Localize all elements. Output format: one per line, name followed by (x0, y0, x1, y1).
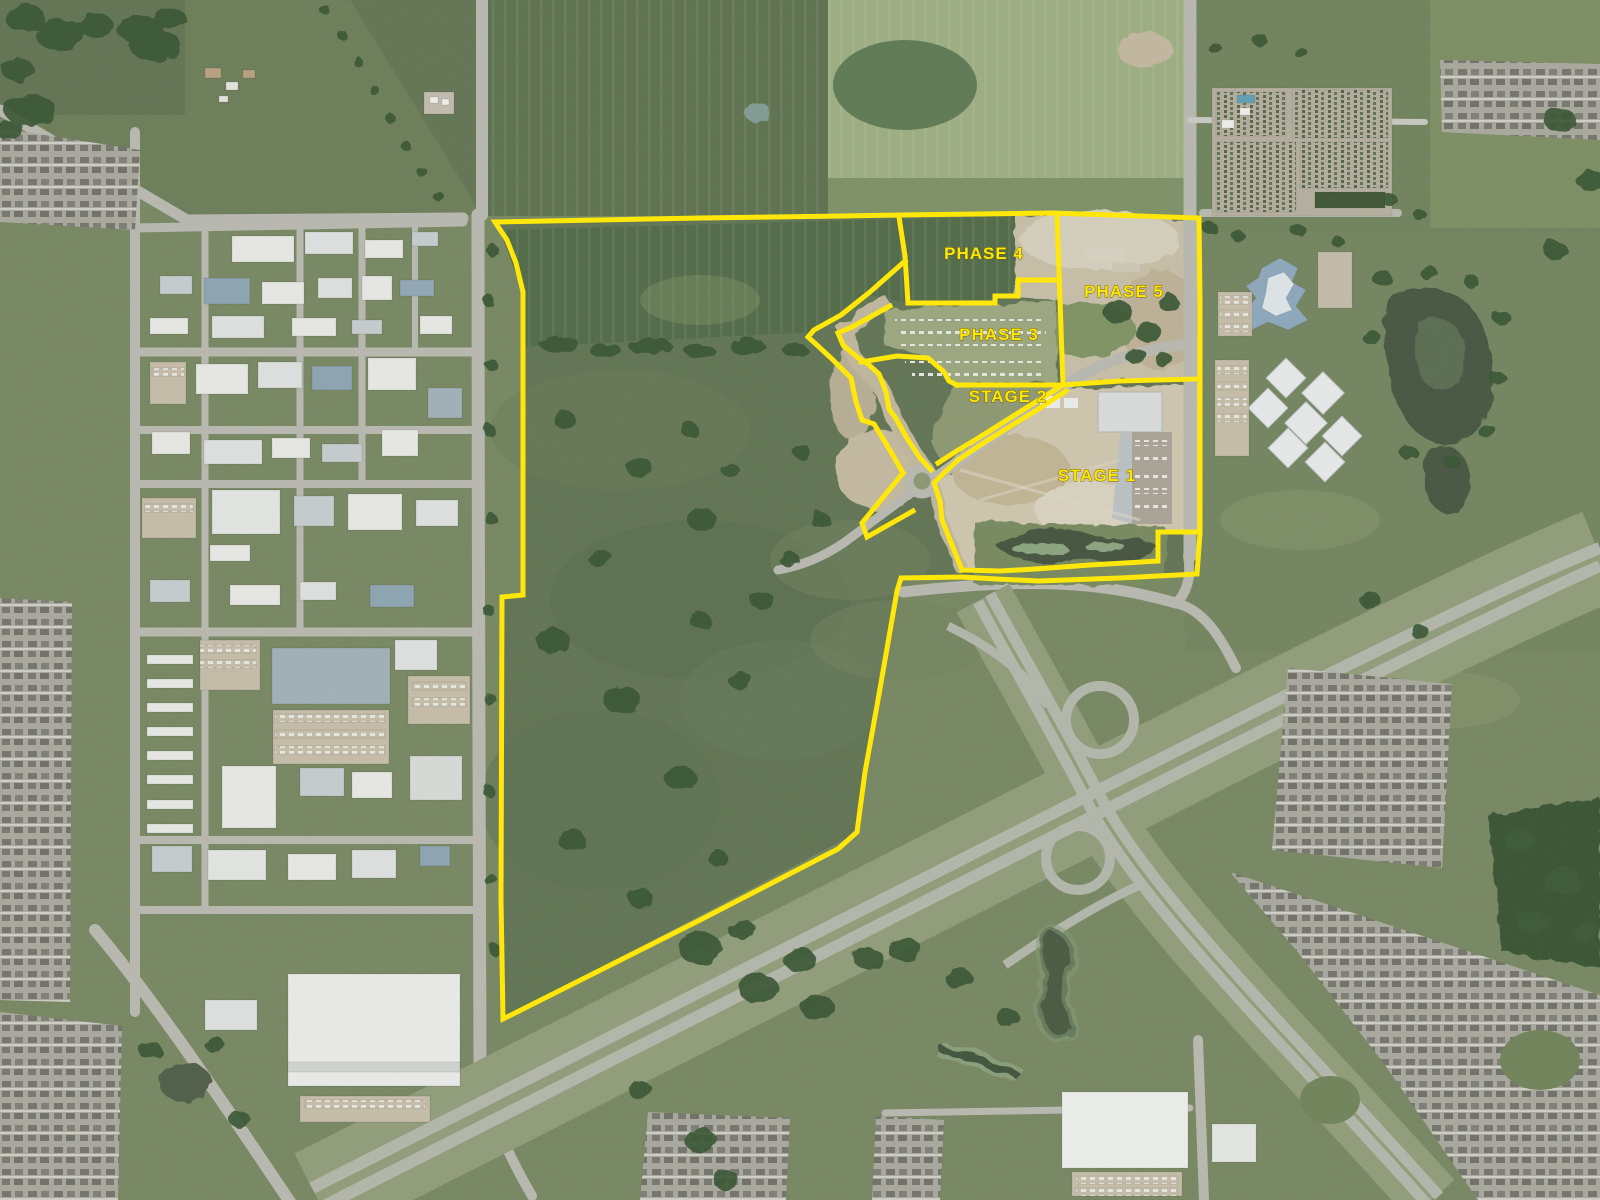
label-stage-2: STAGE 2 (969, 387, 1047, 406)
photo-grain-overlay (0, 0, 1600, 1200)
label-stage-1: STAGE 1 (1058, 466, 1136, 485)
satellite-imagery (0, 0, 1600, 1200)
label-phase-5: PHASE 5 (1084, 282, 1164, 301)
satellite-map-canvas: PHASE 4PHASE 5PHASE 3STAGE 2STAGE 1 (0, 0, 1600, 1200)
label-phase-3: PHASE 3 (959, 325, 1039, 344)
label-phase-4: PHASE 4 (944, 244, 1024, 263)
aerial-development-map: PHASE 4PHASE 5PHASE 3STAGE 2STAGE 1 (0, 0, 1600, 1200)
